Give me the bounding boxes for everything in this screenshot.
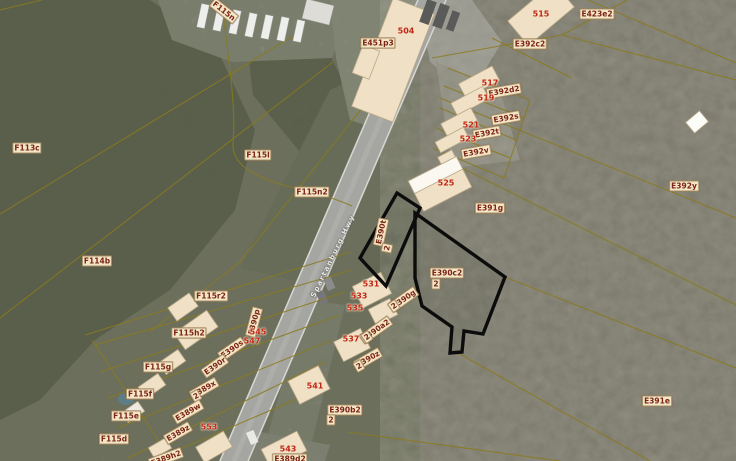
map-graphics [0, 0, 736, 461]
map-canvas[interactable]: Spartanburg Hwy F115nE451p3E423e2E392c2E… [0, 0, 736, 461]
